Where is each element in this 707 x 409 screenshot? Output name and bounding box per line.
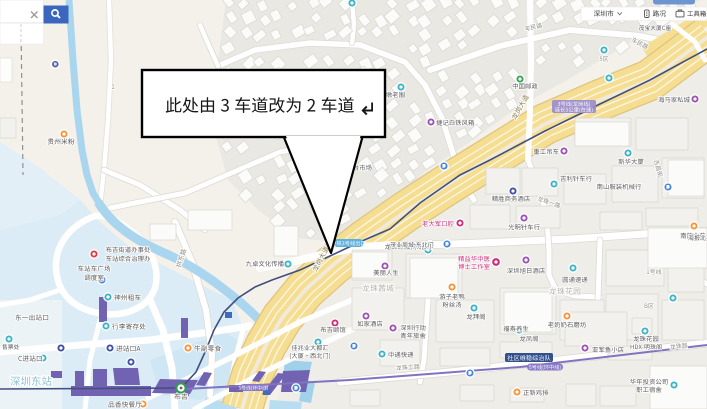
svg-text:P: P (666, 185, 670, 191)
svg-text:P: P (442, 164, 446, 170)
svg-text:P: P (468, 371, 472, 377)
svg-text:P: P (294, 386, 298, 392)
svg-text:P: P (352, 344, 356, 350)
svg-text:P: P (445, 242, 449, 248)
